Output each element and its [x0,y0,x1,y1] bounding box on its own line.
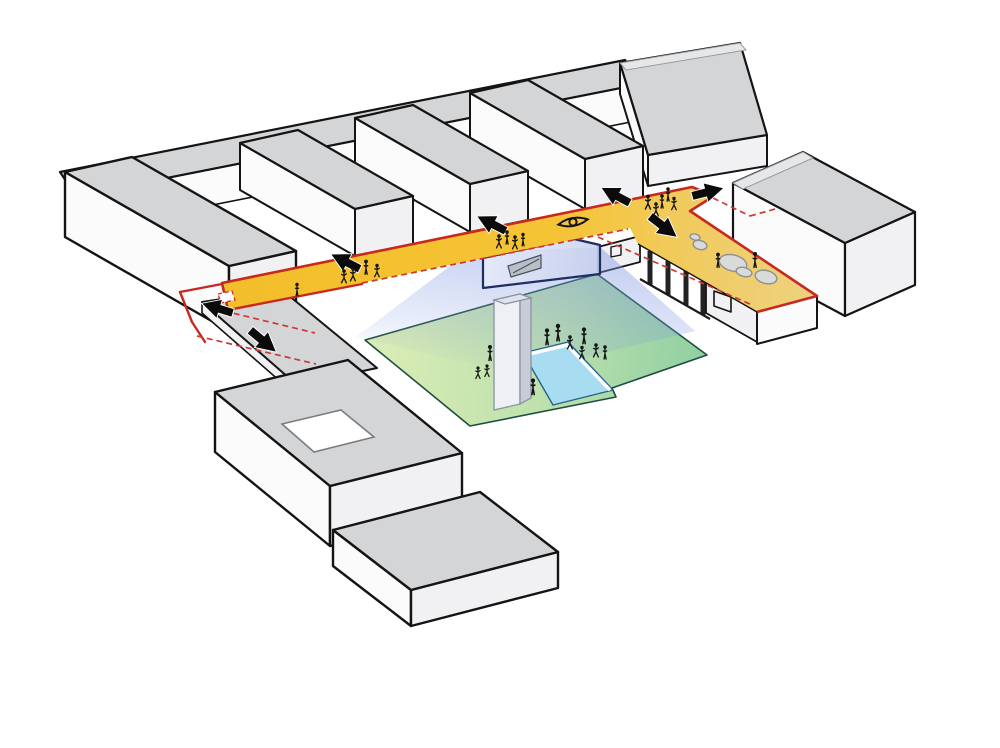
route-solid-red-line [192,322,205,342]
diagram-stage [0,0,1000,748]
tower-side-face [520,294,531,404]
tower-front-face [494,294,520,410]
courtyard-tower [494,294,531,410]
axonometric-diagram [0,0,1000,748]
